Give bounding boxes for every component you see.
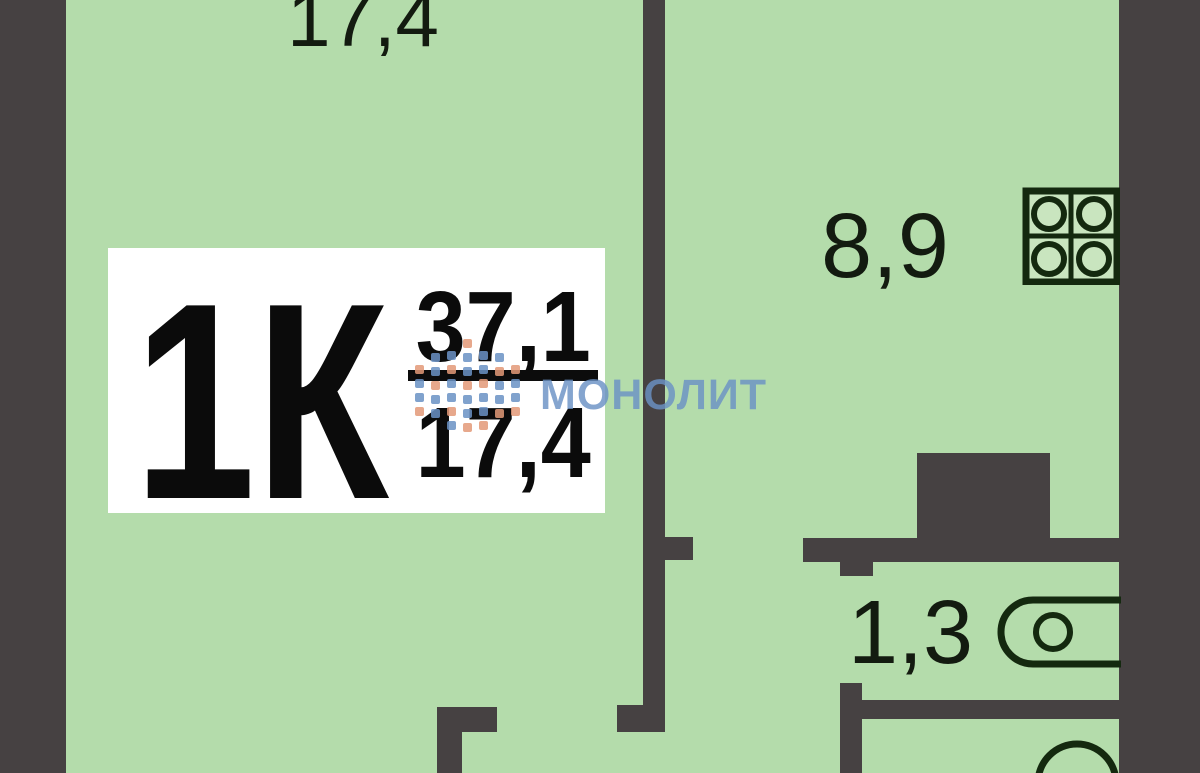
stove-icon [1022,187,1120,290]
monolit-watermark-text: МОНОЛИТ [540,374,767,417]
vent-shaft [917,453,1050,539]
monolit-logo-icon [412,333,530,445]
wall-living-corner-v [437,732,462,773]
wc-area-label: 1,3 [848,588,968,678]
floor-plan-canvas: 17,4 8,9 1,3 1К 37,1 17,4 МОНО [0,0,1200,773]
kitchen-area-label: 8,9 [815,200,955,292]
wall-wc-bottom [862,700,1119,719]
toilet-icon [995,596,1121,673]
wall-living-corner-h [437,707,497,732]
sink-icon [1031,739,1125,773]
apartment-type-label: 1К [134,262,389,542]
wall-right-exterior [1119,0,1200,773]
wall-living-door-jamb [617,705,665,732]
wall-living-kitchen [643,0,665,732]
apartment-label-box: 1К 37,1 17,4 [108,248,605,513]
living-room-area-label: 17,4 [258,0,468,58]
wall-kitchen-hall [803,538,1119,562]
wall-wc-left [840,683,862,773]
wall-left-exterior [0,0,66,773]
wall-kitchen-door-jamb [665,537,693,560]
wall-wc-door-jamb [840,562,873,576]
